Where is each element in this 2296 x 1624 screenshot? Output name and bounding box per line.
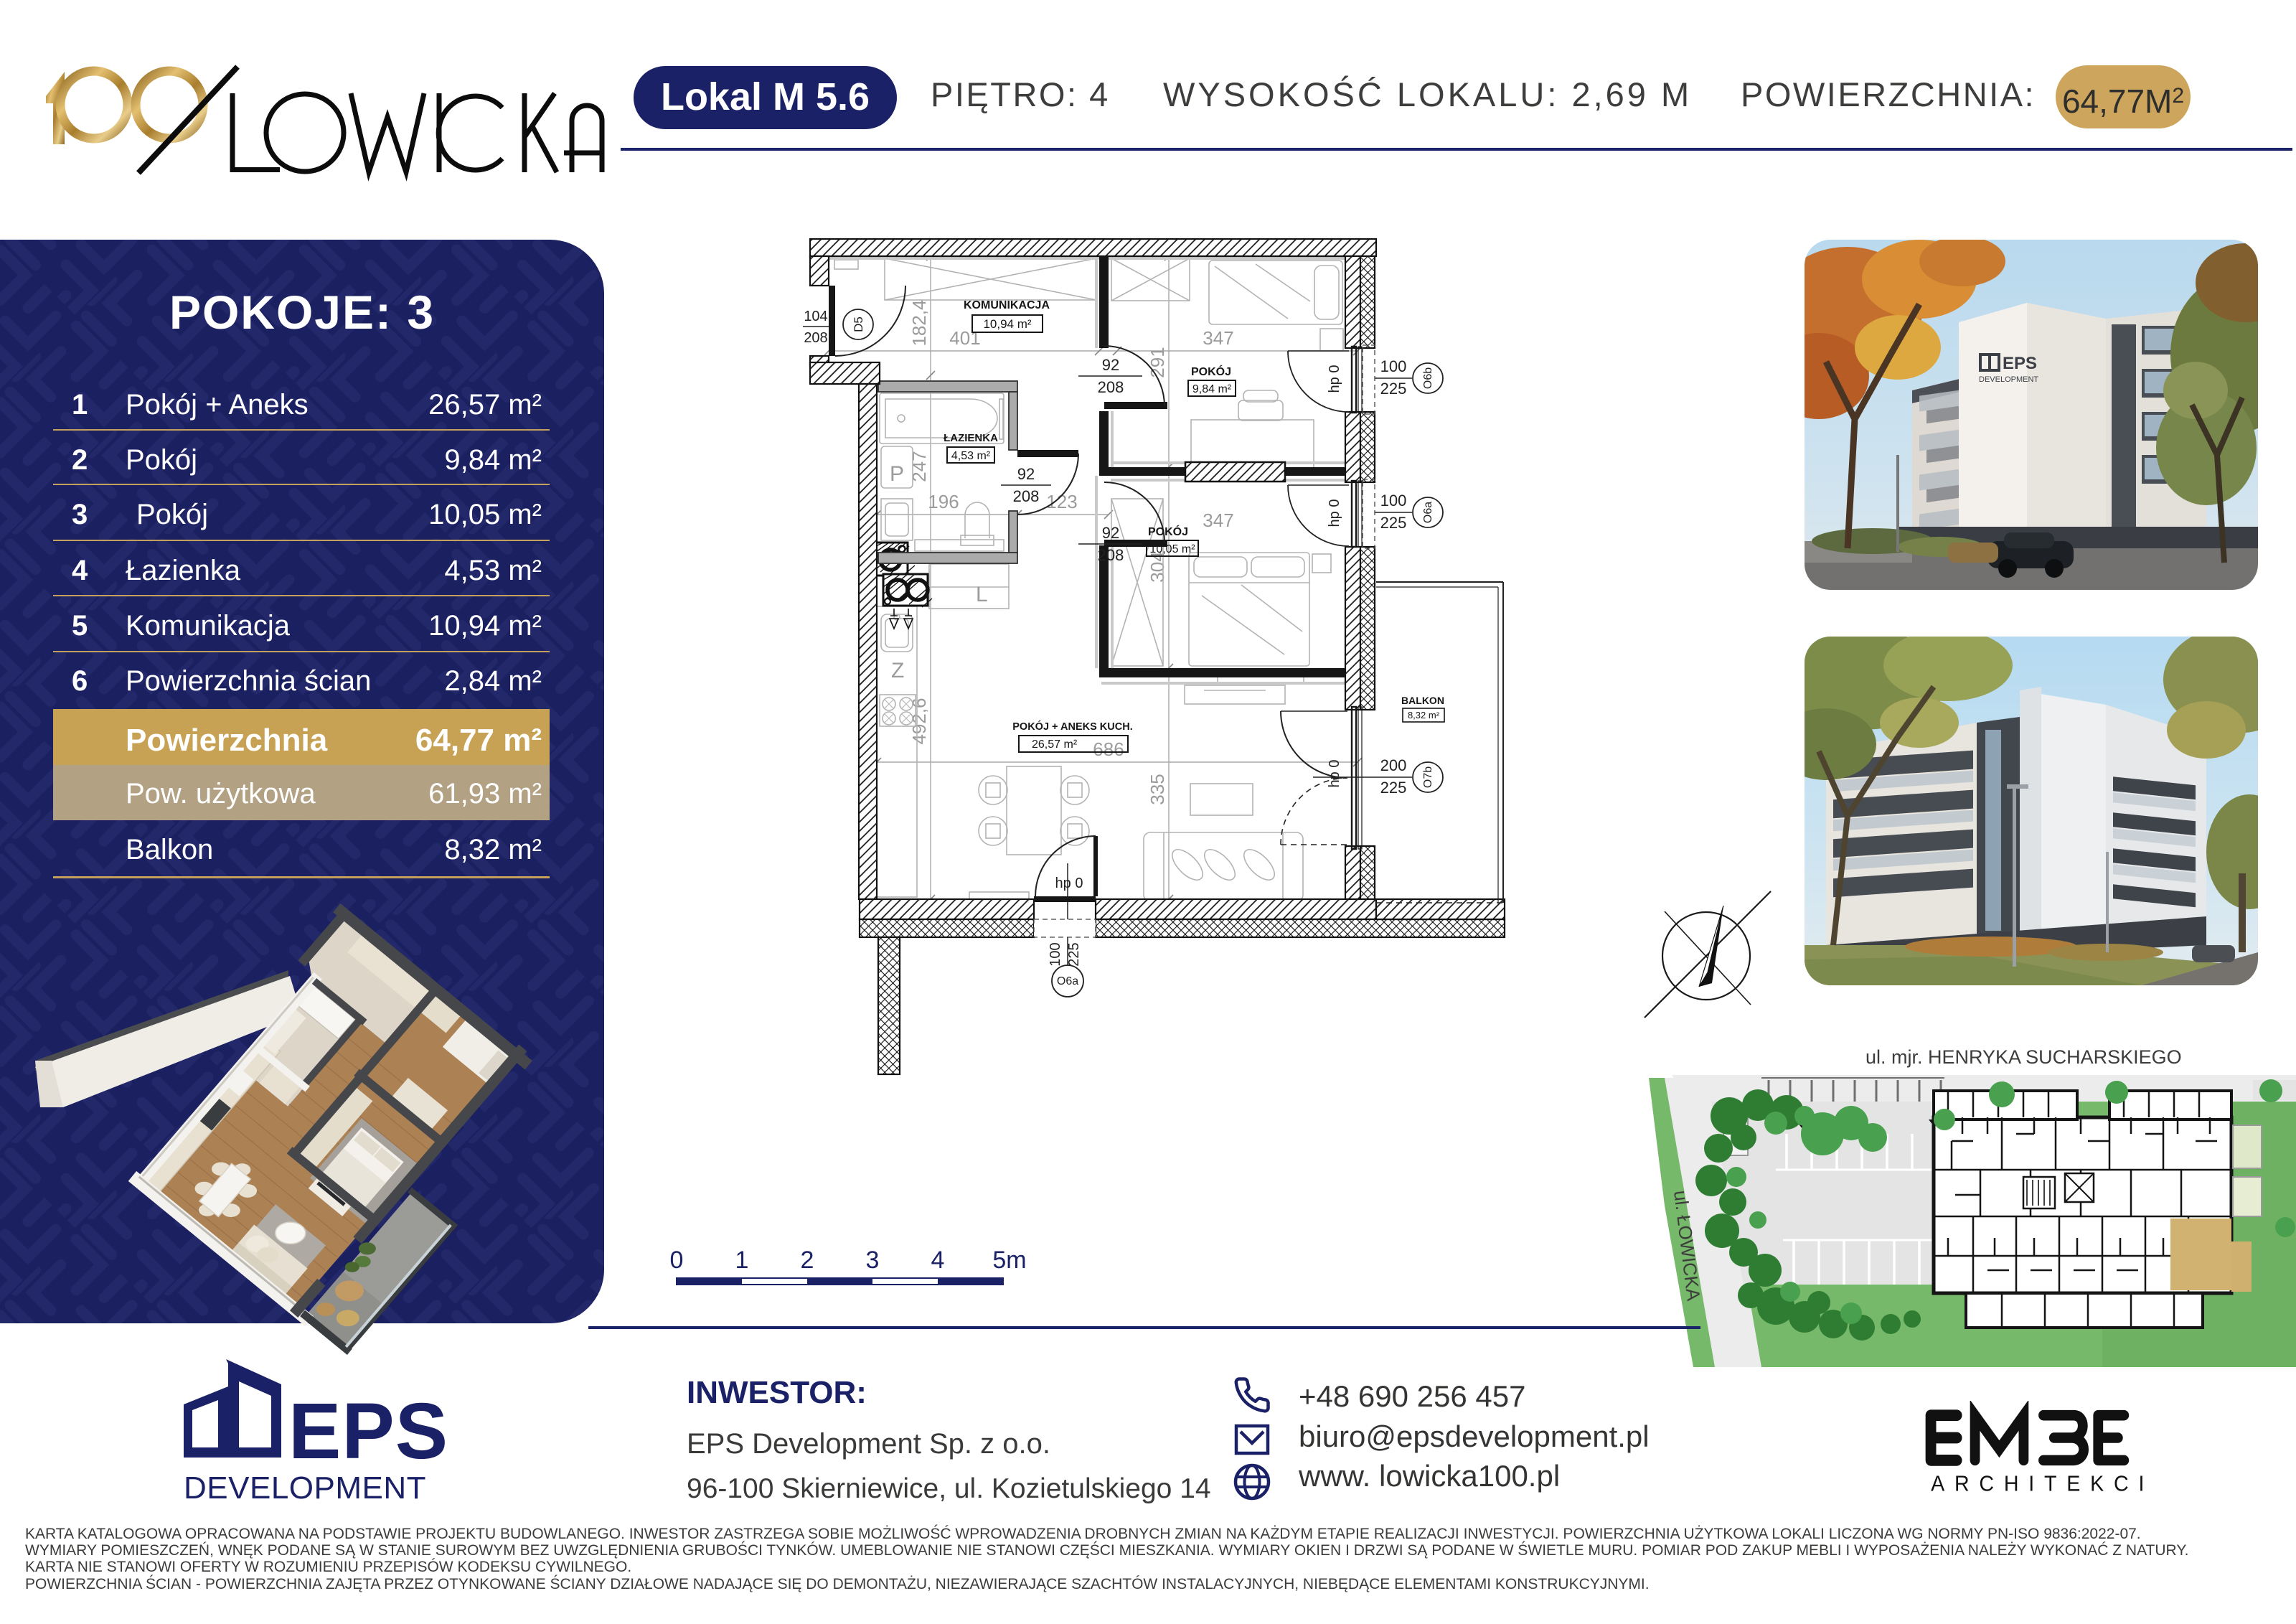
svg-text:347: 347 xyxy=(1203,327,1233,349)
svg-text:BALKON: BALKON xyxy=(1401,695,1444,706)
svg-text:196: 196 xyxy=(928,491,959,512)
svg-text:O6a: O6a xyxy=(1422,502,1434,523)
svg-text:26,57 m²: 26,57 m² xyxy=(1032,738,1078,751)
svg-text:104: 104 xyxy=(804,309,827,324)
svg-text:208: 208 xyxy=(1098,546,1124,564)
svg-text:5m: 5m xyxy=(992,1247,1026,1274)
svg-text:225: 225 xyxy=(1380,380,1407,398)
svg-text:DEVELOPMENT: DEVELOPMENT xyxy=(1979,375,2038,384)
svg-text:POKÓJ: POKÓJ xyxy=(1191,365,1231,378)
svg-text:hp 0: hp 0 xyxy=(1327,499,1342,527)
svg-text:100: 100 xyxy=(1048,942,1063,966)
svg-text:8,32 m²: 8,32 m² xyxy=(1408,710,1440,721)
svg-text:200: 200 xyxy=(1380,756,1407,774)
svg-text:KOMUNIKACJA: KOMUNIKACJA xyxy=(964,299,1050,311)
svg-text:208: 208 xyxy=(1098,378,1124,396)
svg-text:10,94 m²: 10,94 m² xyxy=(983,317,1031,331)
svg-text:92: 92 xyxy=(1102,356,1119,374)
svg-text:10,05 m²: 10,05 m² xyxy=(1149,543,1195,555)
svg-text:335: 335 xyxy=(1147,774,1168,804)
svg-text:P: P xyxy=(890,462,904,486)
svg-text:182,4: 182,4 xyxy=(908,299,930,346)
svg-text:ARCHITEKCI: ARCHITEKCI xyxy=(1931,1472,2154,1496)
svg-text:O6b: O6b xyxy=(1422,367,1434,389)
svg-text:hp 0: hp 0 xyxy=(1327,760,1342,788)
svg-text:9,84 m²: 9,84 m² xyxy=(1192,383,1232,395)
svg-text:O7b: O7b xyxy=(1422,766,1434,788)
svg-text:DEVELOPMENT: DEVELOPMENT xyxy=(184,1470,426,1503)
svg-text:ŁAZIENKA: ŁAZIENKA xyxy=(944,432,998,444)
svg-text:ul. mjr. HENRYKA SUCHARSKIEGO: ul. mjr. HENRYKA SUCHARSKIEGO xyxy=(1865,1048,2182,1068)
svg-text:208: 208 xyxy=(804,330,827,346)
svg-text:291: 291 xyxy=(1147,347,1168,377)
svg-text:POKÓJ + ANEKS KUCH.: POKÓJ + ANEKS KUCH. xyxy=(1012,720,1132,733)
svg-text:0: 0 xyxy=(670,1247,684,1274)
svg-text:92: 92 xyxy=(1017,465,1035,483)
svg-text:3: 3 xyxy=(866,1247,880,1274)
svg-text:L: L xyxy=(976,583,988,606)
svg-text:92: 92 xyxy=(1102,524,1119,542)
svg-text:D5: D5 xyxy=(852,316,865,332)
svg-text:POKÓJ: POKÓJ xyxy=(1148,525,1188,538)
svg-text:247: 247 xyxy=(908,451,930,482)
svg-text:225: 225 xyxy=(1380,514,1407,532)
svg-text:100: 100 xyxy=(1380,357,1407,375)
svg-text:347: 347 xyxy=(1203,510,1233,531)
svg-text:208: 208 xyxy=(1013,487,1040,505)
svg-text:225: 225 xyxy=(1066,942,1082,966)
svg-text:EPS: EPS xyxy=(288,1387,448,1475)
svg-text:4: 4 xyxy=(931,1247,945,1274)
svg-text:1: 1 xyxy=(735,1247,749,1274)
svg-text:hp 0: hp 0 xyxy=(1055,876,1083,891)
svg-text:225: 225 xyxy=(1380,779,1407,797)
svg-text:hp 0: hp 0 xyxy=(1327,365,1342,393)
svg-text:123: 123 xyxy=(1046,491,1077,512)
svg-text:100: 100 xyxy=(1380,492,1407,510)
svg-text:4,53 m²: 4,53 m² xyxy=(951,450,991,462)
svg-text:401: 401 xyxy=(949,327,980,349)
svg-text:O6a: O6a xyxy=(1057,975,1078,987)
svg-text:686: 686 xyxy=(1093,738,1124,760)
svg-text:EPS: EPS xyxy=(2003,354,2037,373)
svg-text:Z: Z xyxy=(891,659,904,682)
svg-text:2: 2 xyxy=(801,1247,814,1274)
